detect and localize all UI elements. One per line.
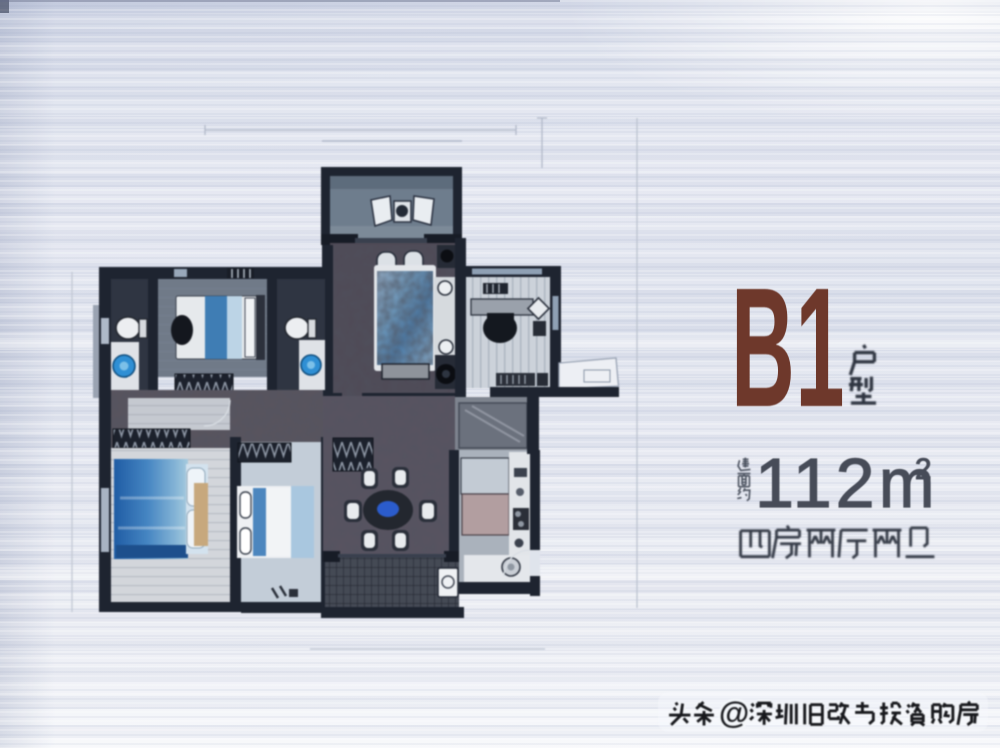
svg-text:@: @ (719, 695, 749, 730)
